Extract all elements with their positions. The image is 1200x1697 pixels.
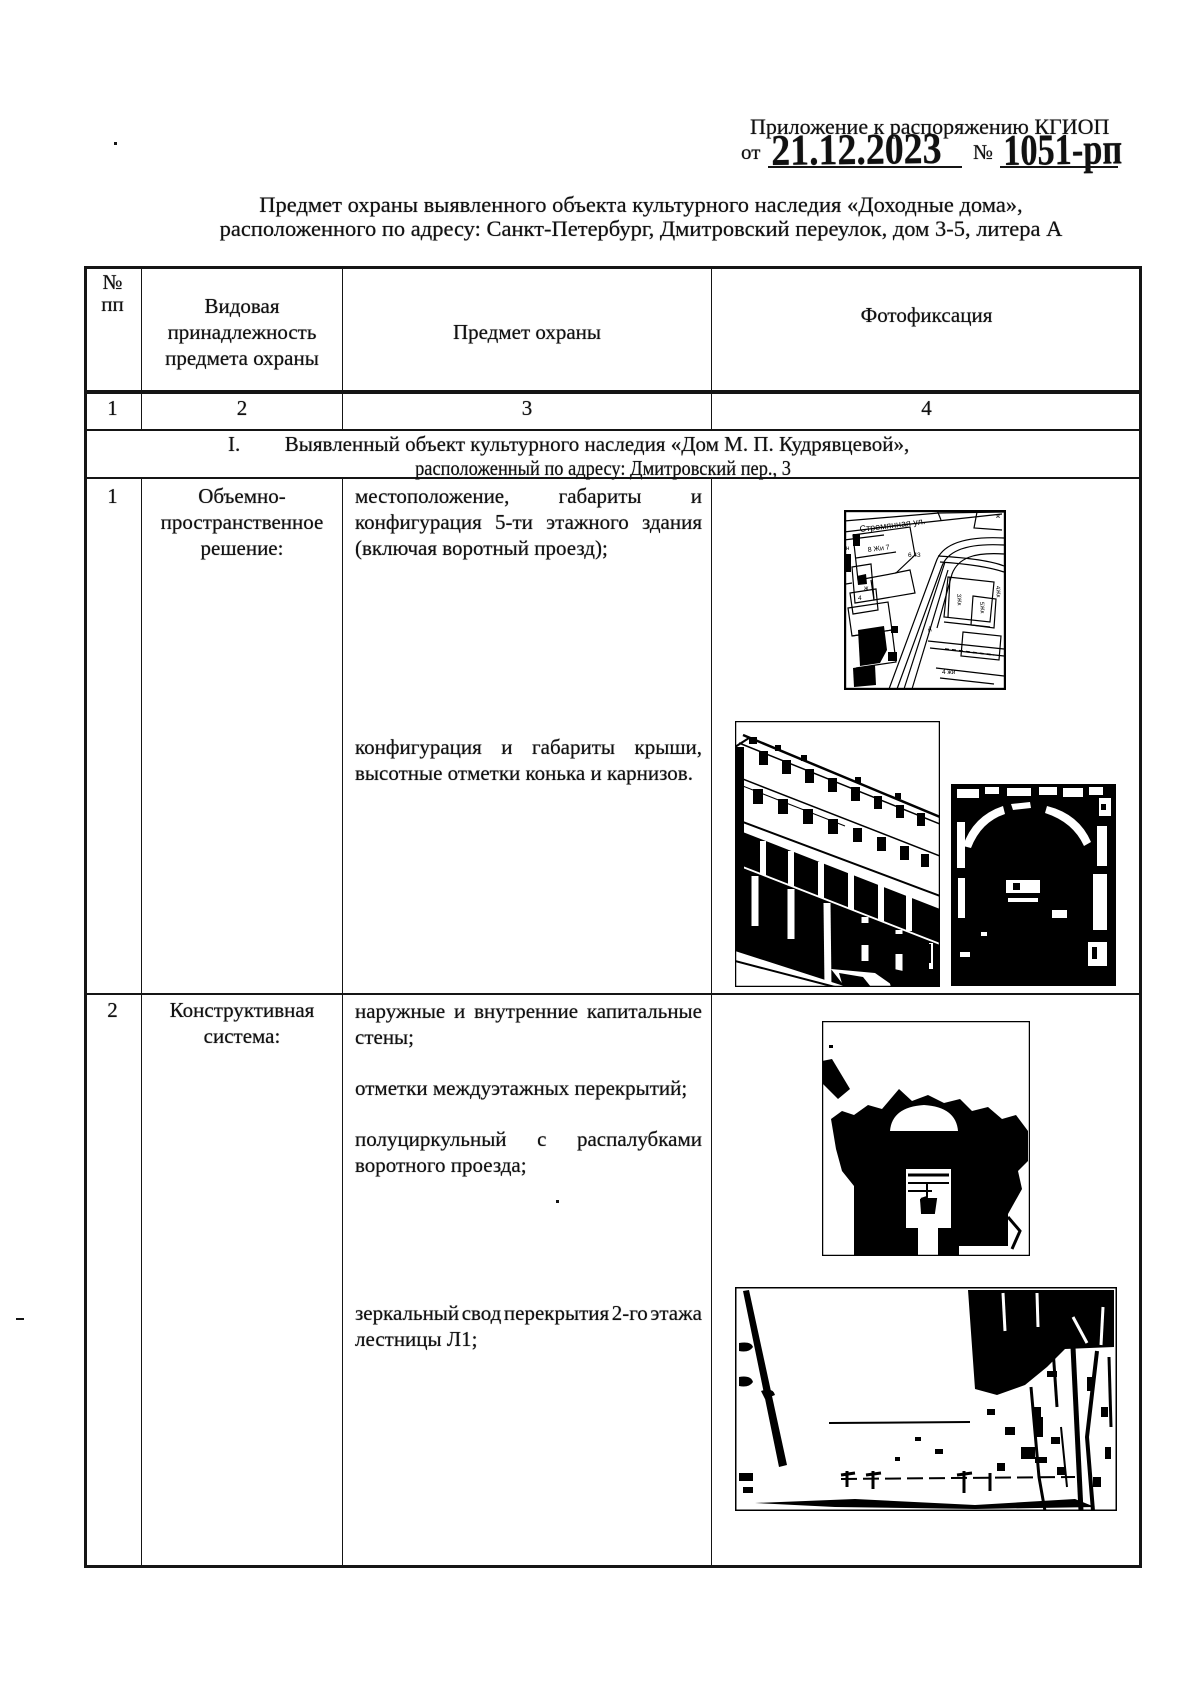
- svg-text:4 жи: 4 жи: [942, 669, 956, 676]
- svg-text:6.43: 6.43: [908, 552, 921, 559]
- svg-text:5Жк: 5Жк: [978, 602, 985, 614]
- svg-text:ж: ж: [864, 585, 869, 592]
- svg-text:н: н: [846, 546, 849, 552]
- svg-text:4: 4: [858, 595, 862, 602]
- svg-text:д: д: [928, 626, 932, 632]
- svg-text:4Жк: 4Жк: [994, 586, 1001, 598]
- svg-text:3Жк: 3Жк: [955, 594, 962, 606]
- svg-text:ж: ж: [996, 514, 1000, 520]
